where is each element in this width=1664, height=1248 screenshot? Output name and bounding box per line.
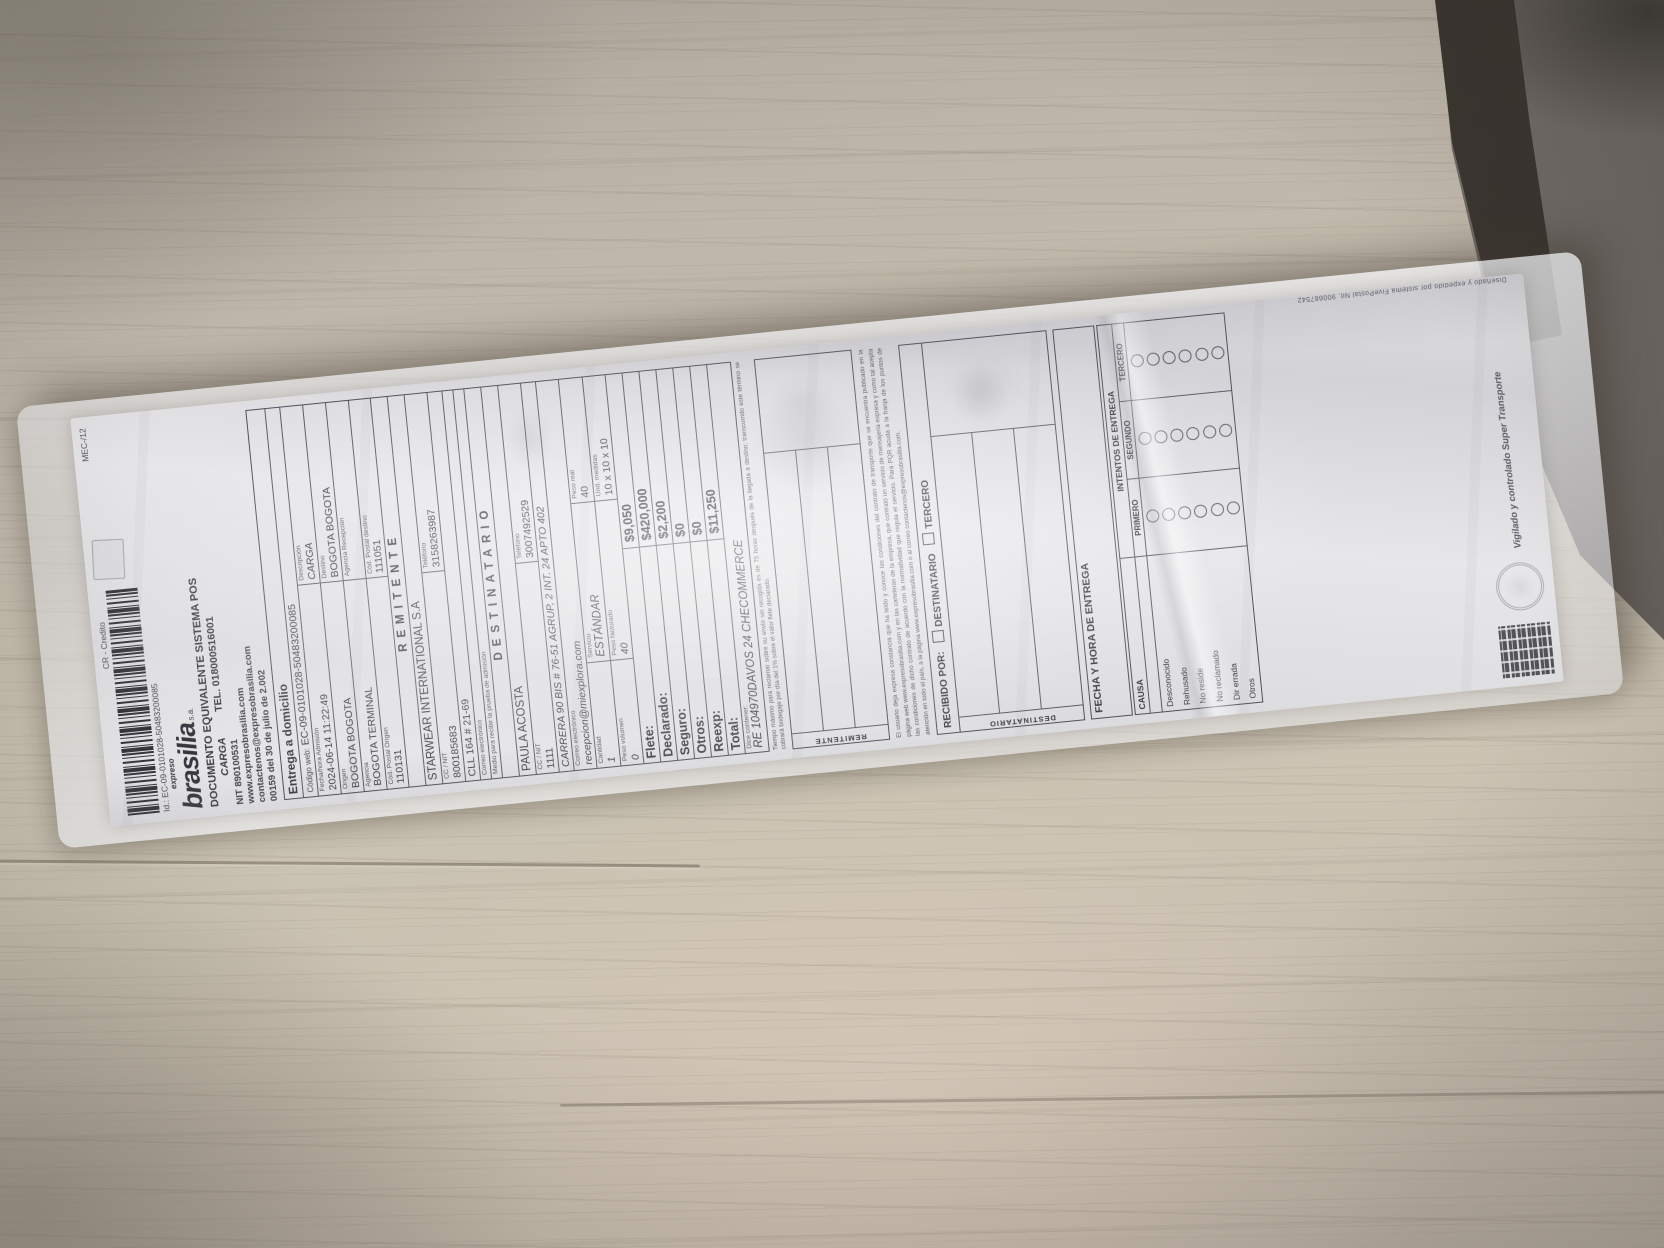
attempt-circle xyxy=(1178,349,1192,363)
attempt-circle xyxy=(1210,502,1224,516)
attempt-circle xyxy=(1194,347,1208,361)
attempt-circles-segundo xyxy=(1132,391,1239,479)
attempt-circle xyxy=(1154,430,1168,444)
attempt-circle xyxy=(1130,354,1144,368)
received-option-tercero: TERCERO xyxy=(917,479,937,545)
doc-code: MEC-/12 xyxy=(77,428,90,462)
attempt-circle xyxy=(1210,346,1224,360)
received-by-label: RECIBIDO POR: xyxy=(935,651,954,728)
main-table: Entrega a domicilio Código web:EC-09-010… xyxy=(245,362,769,801)
attempt-circle xyxy=(1178,506,1192,520)
checkbox-destinatario xyxy=(932,630,945,643)
attempt-circle xyxy=(1202,425,1216,439)
cause-list: Desconocido Rehusado No reside No reclam… xyxy=(1147,546,1262,711)
supertransporte-logo xyxy=(1494,560,1547,613)
attempt-circle xyxy=(1138,431,1152,445)
recipient-stamp-area xyxy=(922,331,1055,437)
attempt-circle xyxy=(1162,350,1176,364)
attempt-circle xyxy=(1226,501,1240,515)
wood-plank-seam xyxy=(0,860,700,868)
attempt-circle xyxy=(1146,352,1160,366)
checkbox-tercero xyxy=(922,532,935,545)
attempt-circle xyxy=(1162,507,1176,521)
attempt-circles-tercero xyxy=(1124,313,1231,401)
brand-logo-suffix: s.a. xyxy=(186,707,196,721)
wood-plank-seam xyxy=(560,1090,1664,1107)
recipient-signature-lines xyxy=(932,425,1083,717)
attempt-circle xyxy=(1194,504,1208,518)
attempt-circle xyxy=(1186,426,1200,440)
qr-code xyxy=(1498,622,1555,679)
sleeve-tab xyxy=(92,539,126,580)
attempt-circle xyxy=(1170,428,1184,442)
photo-scene: CR - Credito MEC-/12 Id.: EC-09-0101028-… xyxy=(0,0,1664,1248)
shipping-receipt: CR - Credito MEC-/12 Id.: EC-09-0101028-… xyxy=(70,274,1564,827)
attempt-circle xyxy=(1218,423,1232,437)
attempt-circles-primero xyxy=(1140,469,1247,557)
sender-stamp-area xyxy=(755,351,860,454)
attempt-circle xyxy=(1145,509,1159,523)
vigilado-text: Vigilado y controlado Super Transporte xyxy=(1492,371,1524,549)
